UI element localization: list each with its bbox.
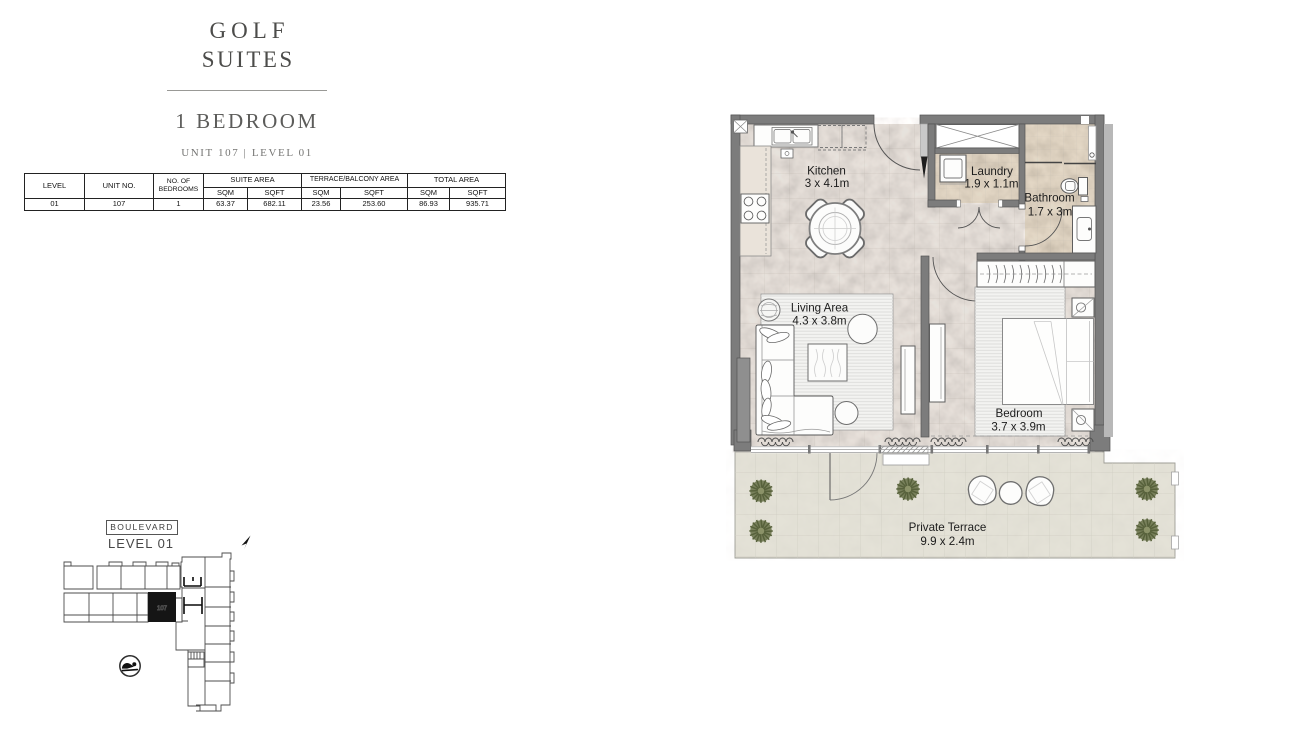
svg-text:1.9 x 1.1m: 1.9 x 1.1m [964, 178, 1018, 191]
svg-text:1.7 x 3m: 1.7 x 3m [1028, 206, 1072, 219]
svg-text:9.9 x 2.4m: 9.9 x 2.4m [920, 535, 974, 548]
svg-text:Private Terrace: Private Terrace [909, 521, 987, 534]
svg-text:Living Area: Living Area [791, 302, 849, 315]
svg-text:Bedroom: Bedroom [995, 407, 1042, 420]
svg-text:3.7 x 3.9m: 3.7 x 3.9m [991, 421, 1045, 434]
svg-text:Laundry: Laundry [971, 165, 1013, 178]
svg-text:3 x 4.1m: 3 x 4.1m [805, 177, 849, 190]
svg-text:4.3 x 3.8m: 4.3 x 3.8m [792, 315, 846, 328]
svg-text:Bathroom: Bathroom [1024, 192, 1074, 205]
svg-text:Kitchen: Kitchen [807, 165, 846, 178]
